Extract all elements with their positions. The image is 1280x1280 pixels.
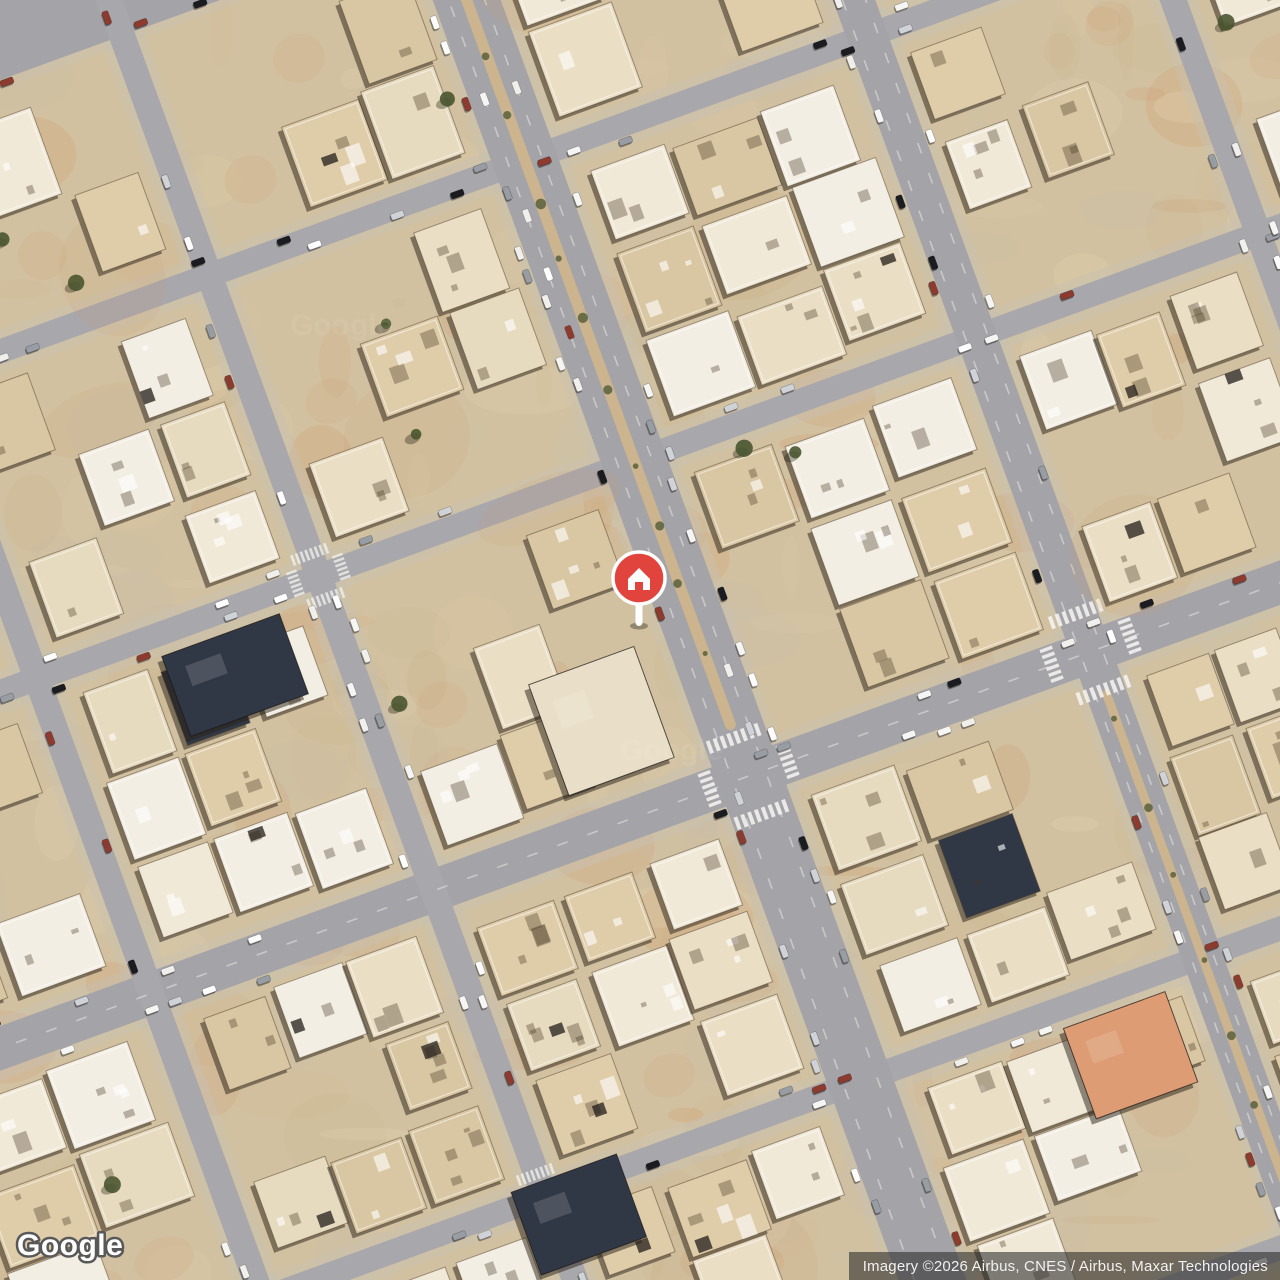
google-logo[interactable]: Google [12, 1223, 152, 1272]
satellite-imagery[interactable]: GoogleGoogle [0, 0, 1280, 1280]
attribution-text: Imagery ©2026 Airbus, CNES / Airbus, Max… [863, 1258, 1268, 1275]
imagery-watermark: Google [290, 309, 393, 342]
imagery-watermark: Google [620, 734, 723, 767]
google-logo-svg: Google [12, 1223, 152, 1267]
google-logo-text: Google [17, 1229, 123, 1262]
map-attribution: Imagery ©2026 Airbus, CNES / Airbus, Max… [849, 1252, 1280, 1280]
map-viewport[interactable]: GoogleGoogle Google Imagery ©2026 Airbus… [0, 0, 1280, 1280]
